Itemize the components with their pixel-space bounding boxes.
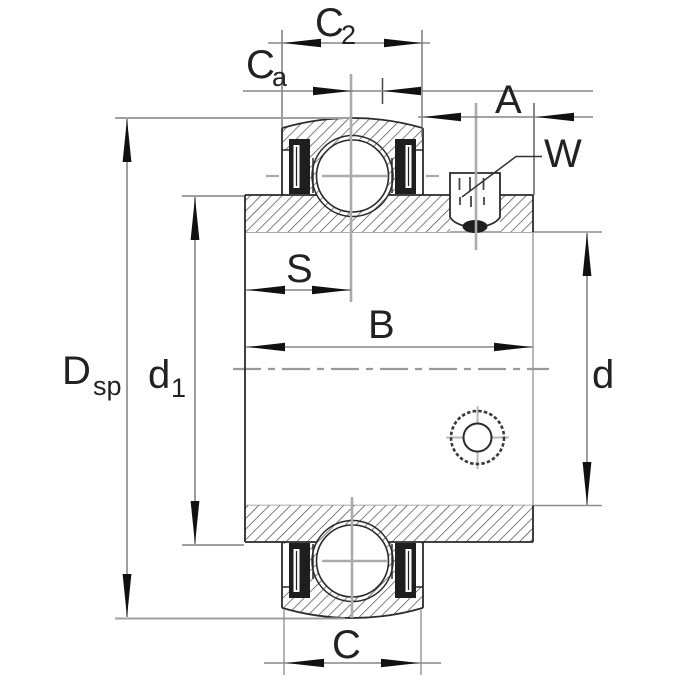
d-top-arrow	[583, 233, 592, 276]
label-ca-sub: a	[272, 62, 288, 92]
label-a: A	[495, 78, 522, 122]
label-s: S	[286, 247, 313, 291]
c2-right-arrow	[384, 39, 422, 47]
dsp-top-arrow	[123, 119, 132, 162]
label-c2: C	[315, 1, 344, 45]
ca-left-arrow	[313, 87, 351, 95]
label-d1: d	[148, 353, 170, 397]
d-bottom-arrow	[583, 462, 592, 505]
c-right-arrow	[381, 659, 419, 667]
a-left-arrow	[423, 113, 461, 121]
bearing-dimension-drawing: C 2 C a A W S B D sp d 1 d C	[0, 0, 680, 680]
b-left-arrow	[247, 343, 285, 351]
d1-top-arrow	[191, 197, 200, 240]
bottom-left-recess	[283, 544, 289, 587]
label-w: W	[544, 132, 582, 176]
set-screw-hole	[446, 406, 509, 469]
d1-bottom-arrow	[191, 501, 200, 544]
label-b: B	[368, 303, 395, 347]
ca-right-arrow	[383, 87, 421, 95]
top-right-recess	[416, 150, 422, 194]
s-left-arrow	[247, 286, 285, 294]
label-d1-sub: 1	[171, 373, 186, 403]
bottom-right-recess	[416, 544, 422, 587]
label-c2-sub: 2	[341, 20, 356, 50]
label-d: d	[592, 353, 614, 397]
label-dsp: D	[62, 349, 91, 393]
hole-core-circle	[464, 424, 492, 452]
c-left-arrow	[286, 659, 324, 667]
dsp-bottom-arrow	[123, 574, 132, 617]
s-right-arrow	[312, 286, 350, 294]
drawing-canvas: C 2 C a A W S B D sp d 1 d C	[0, 0, 680, 680]
a-right-arrow	[536, 113, 574, 121]
b-right-arrow	[494, 343, 532, 351]
label-dsp-sub: sp	[93, 371, 122, 401]
label-c: C	[332, 623, 361, 667]
top-left-recess	[283, 150, 289, 194]
label-ca: C	[246, 43, 275, 87]
